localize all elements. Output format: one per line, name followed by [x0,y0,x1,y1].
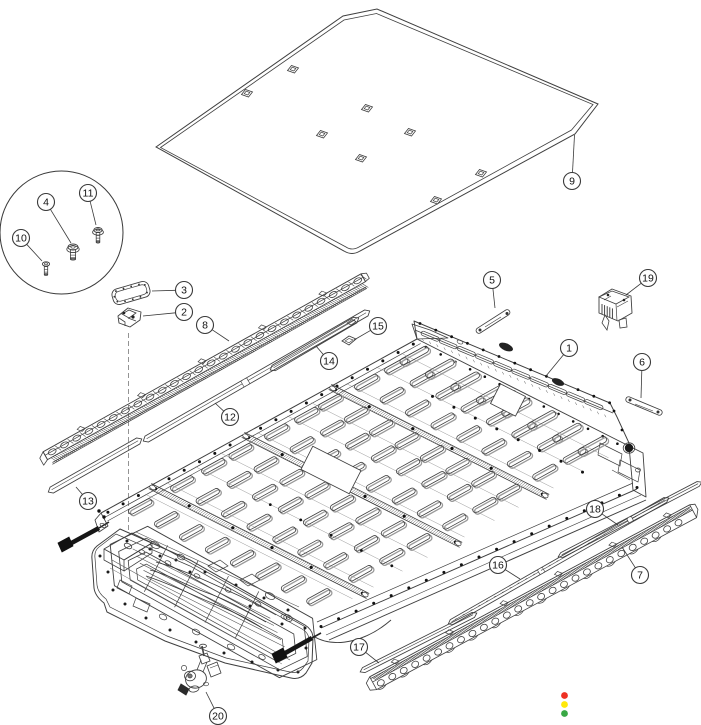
svg-text:6: 6 [639,357,645,369]
svg-text:4: 4 [43,197,49,209]
svg-text:8: 8 [202,320,208,332]
svg-text:19: 19 [642,273,654,285]
svg-text:11: 11 [83,188,94,200]
svg-text:5: 5 [489,275,495,287]
svg-text:18: 18 [589,504,601,516]
svg-text:14: 14 [323,356,335,368]
svg-text:13: 13 [82,496,94,508]
svg-text:10: 10 [15,233,27,245]
svg-text:7: 7 [637,570,643,582]
svg-text:1: 1 [566,343,572,355]
svg-text:12: 12 [224,412,236,424]
svg-text:16: 16 [492,560,504,572]
svg-text:17: 17 [353,642,365,654]
svg-text:3: 3 [181,285,187,297]
svg-text:9: 9 [569,176,575,188]
svg-text:2: 2 [181,307,187,319]
svg-text:20: 20 [212,711,224,723]
svg-text:15: 15 [372,321,384,333]
